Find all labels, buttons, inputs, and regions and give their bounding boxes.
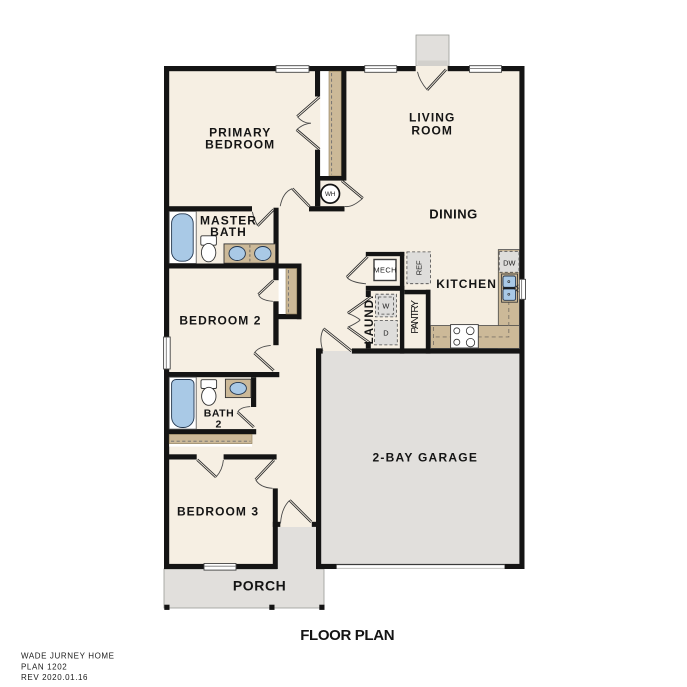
svg-text:2-BAY GARAGE: 2-BAY GARAGE: [372, 451, 478, 465]
svg-text:W: W: [382, 301, 389, 310]
svg-text:LAUND.: LAUND.: [364, 295, 376, 345]
svg-text:BEDROOM: BEDROOM: [205, 138, 275, 152]
svg-text:REF: REF: [414, 260, 423, 275]
svg-text:DW: DW: [503, 258, 515, 267]
svg-text:BEDROOM 2: BEDROOM 2: [179, 313, 261, 327]
svg-text:PANTRY: PANTRY: [410, 300, 421, 334]
svg-text:ROOM: ROOM: [411, 123, 453, 137]
svg-text:BATH: BATH: [210, 225, 247, 239]
svg-text:MECH: MECH: [374, 266, 397, 275]
svg-text:KITCHEN: KITCHEN: [436, 277, 497, 291]
svg-text:WADE JURNEY HOME: WADE JURNEY HOME: [21, 652, 115, 661]
svg-text:2: 2: [216, 419, 223, 431]
svg-text:REV 2020.01.16: REV 2020.01.16: [21, 673, 88, 682]
svg-text:PLAN 1202: PLAN 1202: [21, 662, 67, 671]
svg-text:PORCH: PORCH: [233, 578, 287, 594]
svg-text:WH: WH: [325, 191, 336, 198]
svg-text:FLOOR PLAN: FLOOR PLAN: [300, 627, 394, 644]
svg-text:BEDROOM 3: BEDROOM 3: [177, 504, 259, 518]
svg-text:D: D: [383, 329, 388, 338]
svg-text:BATH: BATH: [204, 407, 234, 419]
svg-text:DINING: DINING: [429, 206, 478, 221]
